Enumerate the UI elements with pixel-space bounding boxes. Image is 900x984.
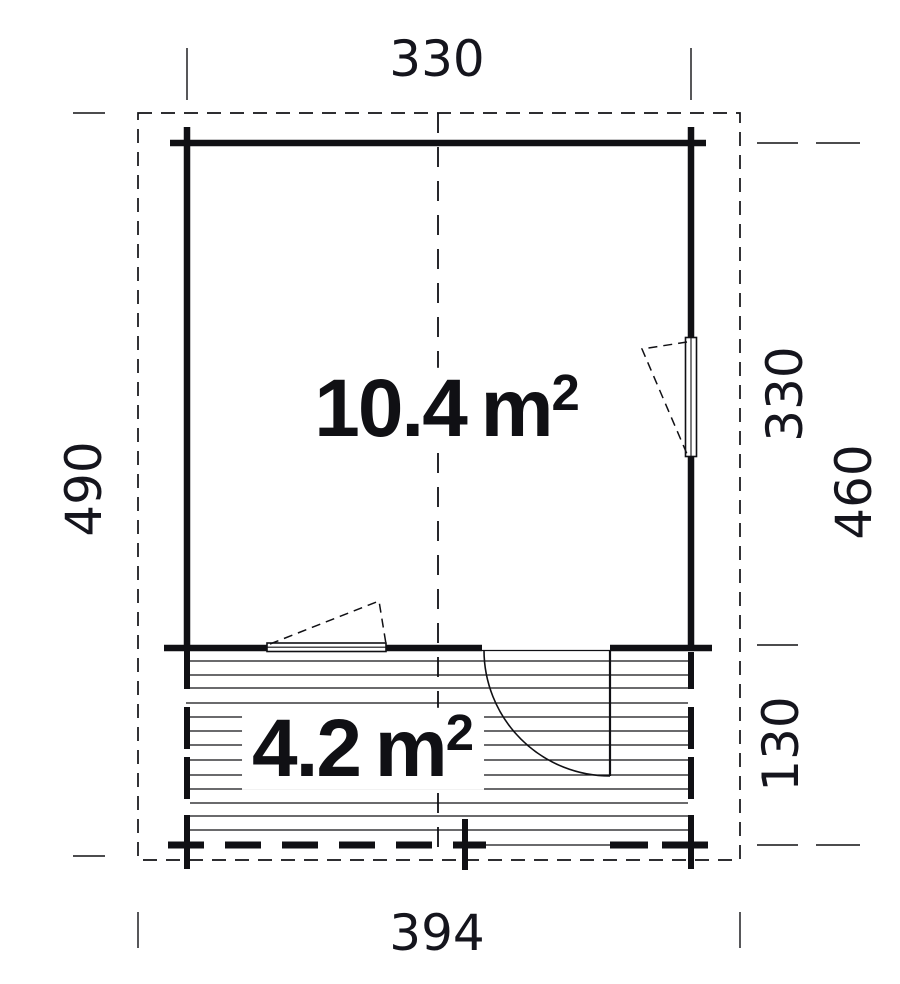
area-main-room-value: 10.4 [314,363,466,454]
window-front-swing [270,601,386,644]
area-terrace-value: 4.2 [252,703,360,794]
floor-plan-drawing [0,0,900,984]
dim-left-height: 490 [58,435,111,542]
area-main-room-unit: m [481,363,552,454]
dimension-extension-lines [73,48,860,948]
area-label-terrace: 4.2m2 [242,708,484,790]
dim-right-room-depth: 330 [759,340,812,447]
area-label-main-room: 10.4m2 [304,368,590,450]
dim-bottom-width: 394 [383,907,490,960]
dim-right-total-depth: 460 [828,438,881,545]
area-terrace-sup: 2 [446,704,474,761]
dim-top-width: 330 [383,33,490,86]
window-right-swing [642,342,687,454]
area-terrace-unit: m [375,703,446,794]
floor-plan: 330 394 490 330 460 130 10.4m2 4.2m2 [0,0,900,984]
window-right [642,338,697,457]
door-swing [484,650,610,776]
door-arc [484,650,610,776]
area-main-room-sup: 2 [552,364,580,421]
window-front [267,601,386,652]
dim-right-terrace-depth: 130 [755,690,808,797]
